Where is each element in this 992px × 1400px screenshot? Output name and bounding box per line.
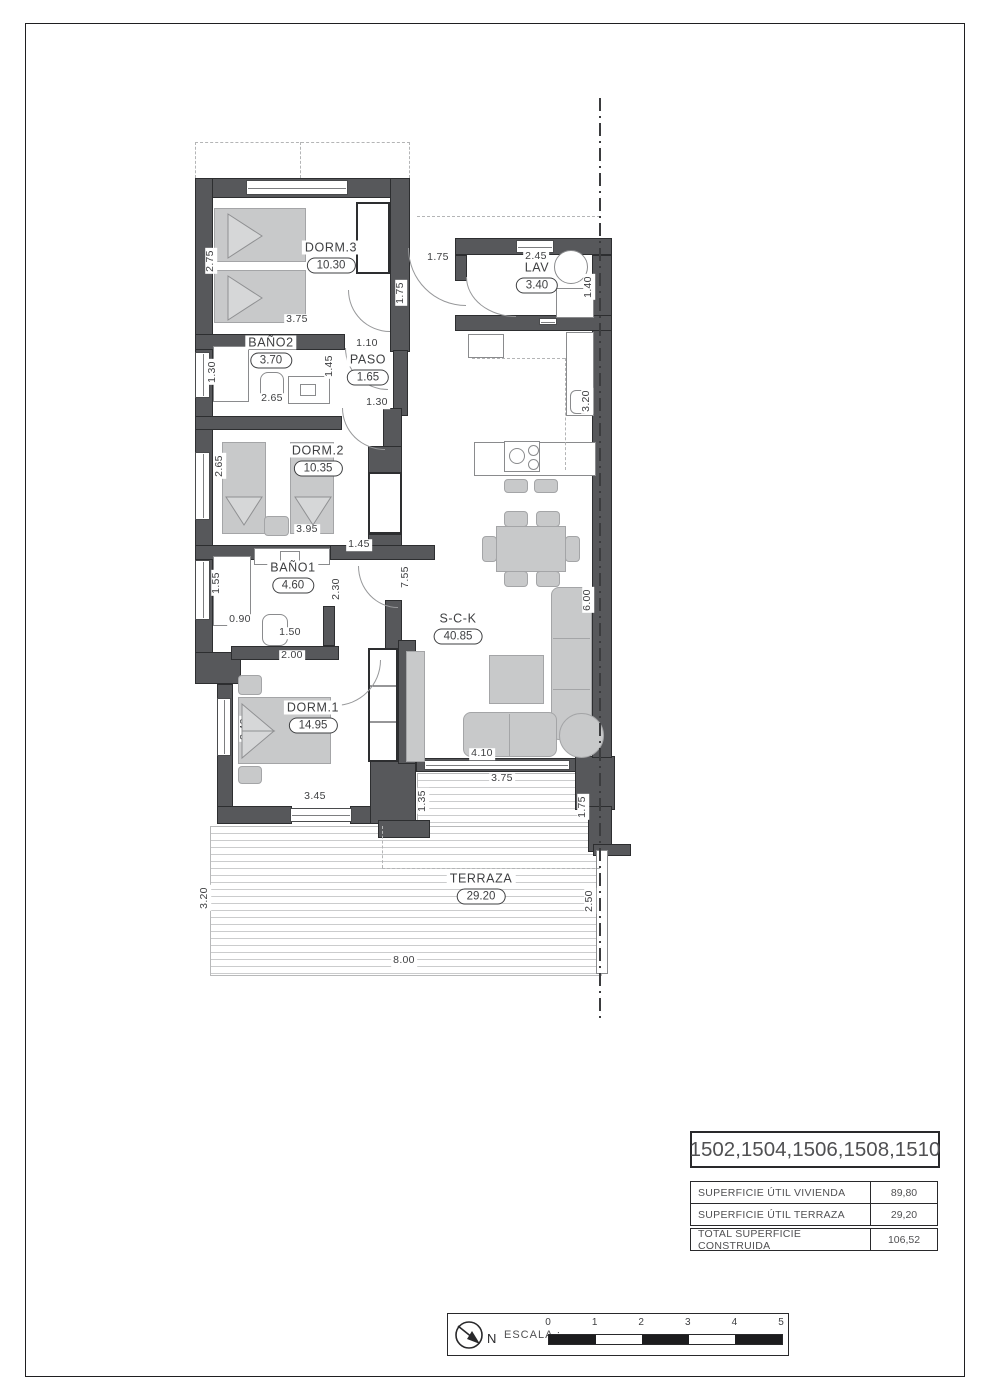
window <box>195 452 210 520</box>
dimension-label: 1.75 <box>425 252 451 264</box>
construction-dashed-line <box>417 216 600 217</box>
room-label-dorm3: DORM.310.30 <box>302 241 360 274</box>
unit-numbers: 1502,1504,1506,1508,1510 <box>690 1131 940 1168</box>
wall-segment <box>393 350 408 416</box>
dimension-label: 1.50 <box>277 627 303 639</box>
furniture <box>222 442 266 534</box>
dimension-label: 2.65 <box>214 453 226 479</box>
wardrobe <box>356 202 390 274</box>
window <box>290 808 352 822</box>
construction-dashed-line <box>382 826 383 868</box>
wall-segment <box>323 606 335 646</box>
room-area-value: 10.30 <box>307 258 356 274</box>
furniture <box>504 571 528 587</box>
table-row: SUPERFICIE ÚTIL TERRAZA 29,20 <box>691 1203 937 1225</box>
room-label-terraza: TERRAZA29.20 <box>447 872 516 905</box>
scale-tick: 0 <box>545 1317 551 1328</box>
scale-tick: 1 <box>592 1317 598 1328</box>
furniture <box>536 571 560 587</box>
dimension-label: 2.00 <box>279 650 305 662</box>
north-label: N <box>487 1331 496 1346</box>
dimension-label: 3.20 <box>581 388 593 414</box>
room-name: DORM.3 <box>302 241 360 255</box>
room-label-bano2: BAÑO23.70 <box>245 336 296 369</box>
dimension-label: 1.45 <box>324 353 336 379</box>
dimension-label: 1.40 <box>583 274 595 300</box>
dimension-label: 1.30 <box>364 397 390 409</box>
construction-dashed-line <box>472 358 565 359</box>
room-area-value: 4.60 <box>272 578 314 594</box>
wardrobe <box>368 472 402 534</box>
room-area-value: 3.40 <box>516 278 558 294</box>
scale-tick: 3 <box>685 1317 691 1328</box>
round-table <box>559 713 604 758</box>
scale-segment <box>735 1335 782 1344</box>
dimension-label: 2.65 <box>259 393 285 405</box>
construction-dashed-line <box>300 142 301 178</box>
dimension-label: 3.20 <box>199 885 211 911</box>
wall-segment <box>378 820 430 838</box>
table-row: SUPERFICIE ÚTIL VIVIENDA 89,80 <box>691 1182 937 1203</box>
scale-tick: 2 <box>638 1317 644 1328</box>
scale-segment <box>596 1335 643 1344</box>
dimension-label: 6.00 <box>582 587 594 613</box>
dimension-label: 1.30 <box>207 359 219 385</box>
furniture <box>489 655 544 704</box>
furniture <box>565 536 580 562</box>
room-label-lav: LAV3.40 <box>516 261 558 294</box>
furniture <box>406 651 425 762</box>
window <box>246 180 348 195</box>
room-label-sck: S-C-K40.85 <box>434 612 483 645</box>
dimension-label: 1.75 <box>577 794 589 820</box>
wall-segment <box>383 408 402 450</box>
dimension-label: 3.75 <box>489 773 515 785</box>
wall-segment <box>217 806 292 824</box>
table-row: TOTAL SUPERFICIE CONSTRUIDA 106,52 <box>691 1229 937 1250</box>
section-dashdot-line <box>599 98 601 1020</box>
dimension-label: 3.75 <box>284 314 310 326</box>
window <box>195 560 210 620</box>
room-area-value: 1.65 <box>347 370 389 386</box>
room-name: BAÑO2 <box>245 336 296 350</box>
appliance-circle <box>528 459 539 470</box>
room-area-value: 14.95 <box>289 718 338 734</box>
total-surface-box: TOTAL SUPERFICIE CONSTRUIDA 106,52 <box>690 1228 938 1251</box>
room-name: S-C-K <box>436 612 479 626</box>
sofa-divider <box>553 689 590 690</box>
scale-segments <box>548 1334 783 1345</box>
dimension-label: 0.90 <box>227 614 253 626</box>
furniture <box>482 536 497 562</box>
room-name: BAÑO1 <box>267 561 318 575</box>
scale-bar: N ESCALA : 0 1 2 3 4 5 <box>447 1313 789 1356</box>
dimension-label: 2.30 <box>331 576 343 602</box>
room-name: LAV <box>522 261 553 275</box>
fixture <box>468 334 504 358</box>
scale-tick: 4 <box>732 1317 738 1328</box>
furniture <box>504 479 528 493</box>
wall-segment <box>195 416 342 430</box>
room-name: TERRAZA <box>447 872 516 886</box>
dimension-label: 8.00 <box>391 955 417 967</box>
appliance-circle <box>509 448 525 464</box>
dimension-label: 1.55 <box>211 570 223 596</box>
sofa-divider <box>553 638 590 639</box>
room-name: DORM.2 <box>289 444 347 458</box>
scale-segment <box>689 1335 736 1344</box>
surface-value: 29,20 <box>870 1204 937 1225</box>
furniture <box>238 766 262 784</box>
furniture <box>214 208 306 262</box>
room-label-dorm2: DORM.210.35 <box>289 444 347 477</box>
scale-segment <box>549 1335 596 1344</box>
north-compass-icon <box>453 1318 487 1352</box>
construction-dashed-line <box>565 358 566 470</box>
wall-segment <box>370 756 416 824</box>
dimension-label: 7.55 <box>400 564 412 590</box>
wall-segment <box>390 178 410 352</box>
dimension-label: 2.75 <box>205 248 217 274</box>
drawing-sheet: DORM.310.30LAV3.40BAÑO23.70PASO1.65DORM.… <box>0 0 992 1400</box>
window <box>539 318 557 325</box>
room-name: PASO <box>347 353 389 367</box>
room-label-dorm1: DORM.114.95 <box>284 701 342 734</box>
fixture <box>300 384 316 396</box>
furniture <box>238 675 262 695</box>
construction-dashed-line <box>382 868 600 869</box>
dimension-label: 1.10 <box>354 338 380 350</box>
dimension-label: 1.75 <box>395 280 407 306</box>
room-label-bano1: BAÑO14.60 <box>267 561 318 594</box>
window <box>217 698 231 756</box>
furniture <box>496 526 566 572</box>
dimension-label: 3.40 <box>239 716 251 742</box>
furniture <box>536 511 560 527</box>
room-area-value: 40.85 <box>434 629 483 645</box>
window <box>424 760 570 770</box>
wall-segment <box>368 446 402 474</box>
total-label: TOTAL SUPERFICIE CONSTRUIDA <box>691 1229 870 1250</box>
dimension-label: 3.95 <box>294 524 320 536</box>
room-area-value: 10.35 <box>294 461 343 477</box>
surface-label: SUPERFICIE ÚTIL VIVIENDA <box>691 1182 870 1203</box>
sofa-divider <box>509 714 510 756</box>
surface-table: SUPERFICIE ÚTIL VIVIENDA 89,80 SUPERFICI… <box>690 1181 938 1226</box>
dimension-label: 4.10 <box>469 748 495 760</box>
scale-segment <box>642 1335 689 1344</box>
furniture <box>504 511 528 527</box>
appliance-circle <box>528 445 539 456</box>
total-value: 106,52 <box>870 1229 937 1250</box>
dimension-label: 1.45 <box>346 539 372 551</box>
surface-value: 89,80 <box>870 1182 937 1203</box>
room-area-value: 29.20 <box>457 889 506 905</box>
dimension-label: 2.50 <box>584 888 596 914</box>
surface-label: SUPERFICIE ÚTIL TERRAZA <box>691 1204 870 1225</box>
room-area-value: 3.70 <box>250 353 292 369</box>
furniture <box>534 479 558 493</box>
furniture <box>264 516 289 536</box>
dimension-label: 3.45 <box>302 791 328 803</box>
room-label-paso: PASO1.65 <box>347 353 389 386</box>
construction-dashed-line <box>195 142 410 178</box>
scale-tick: 5 <box>778 1317 784 1328</box>
dimension-label: 1.35 <box>417 788 429 814</box>
room-name: DORM.1 <box>284 701 342 715</box>
